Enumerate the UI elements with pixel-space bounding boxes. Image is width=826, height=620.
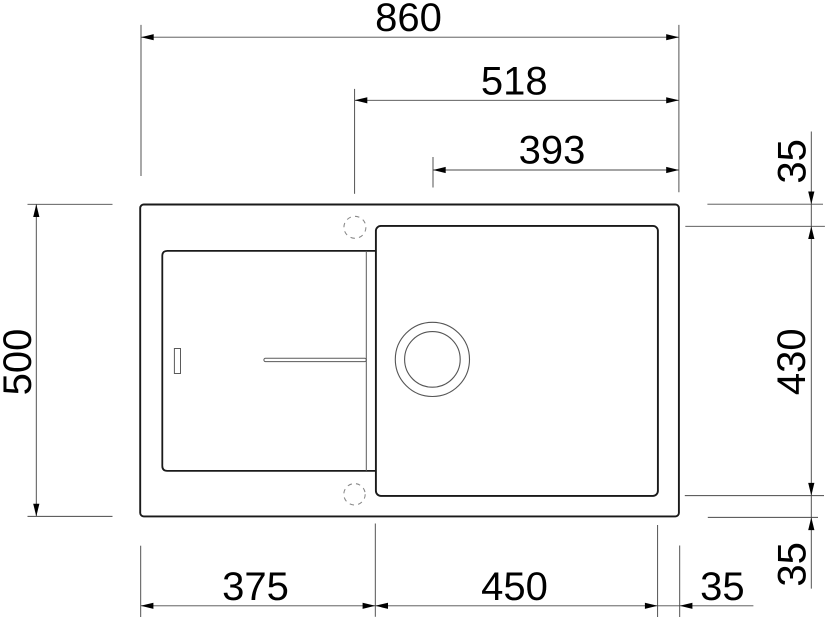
svg-text:35: 35 xyxy=(771,139,815,184)
svg-text:35: 35 xyxy=(700,565,745,609)
svg-text:393: 393 xyxy=(519,129,586,173)
svg-text:450: 450 xyxy=(481,565,548,609)
svg-text:860: 860 xyxy=(375,0,442,40)
svg-text:35: 35 xyxy=(771,542,815,587)
svg-text:430: 430 xyxy=(770,328,814,395)
svg-text:500: 500 xyxy=(0,329,40,396)
svg-text:518: 518 xyxy=(481,60,548,104)
svg-text:375: 375 xyxy=(222,565,289,609)
